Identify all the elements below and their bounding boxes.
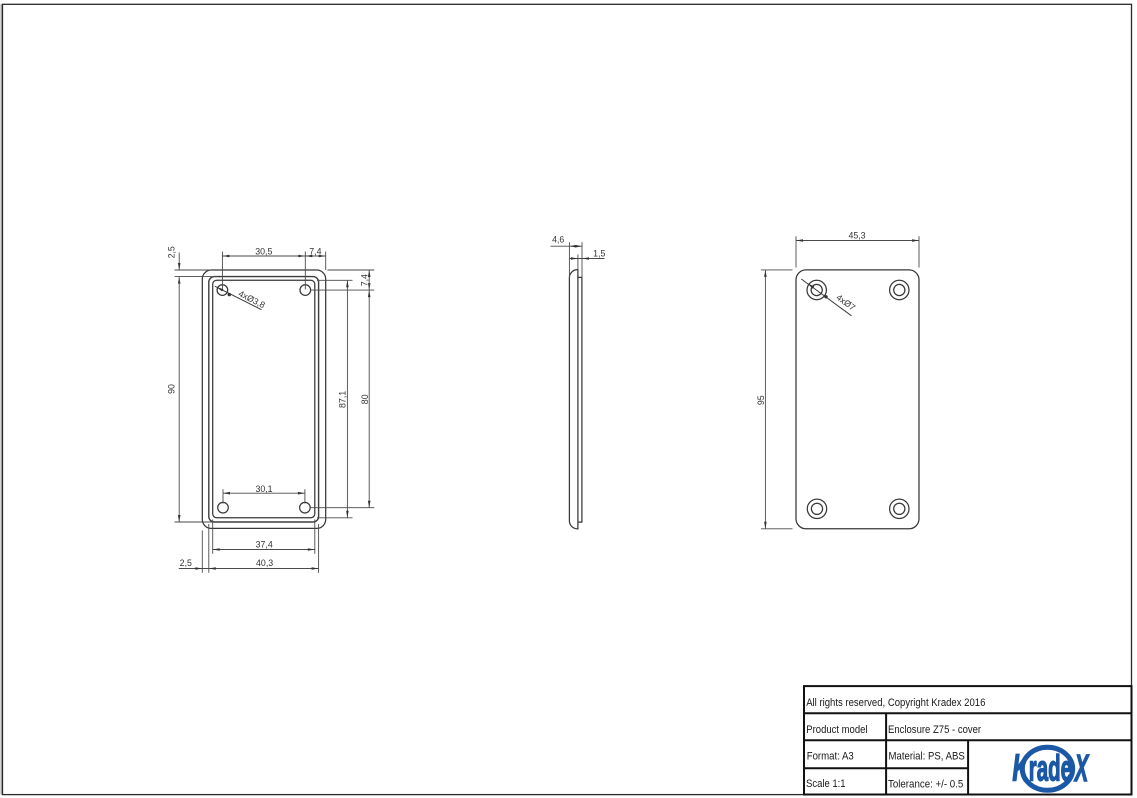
svg-text:45,3: 45,3 [848, 231, 865, 241]
svg-text:All rights reserved, Copyright: All rights reserved, Copyright Kradex 20… [806, 697, 985, 709]
svg-text:95: 95 [756, 395, 766, 405]
svg-text:40,3: 40,3 [256, 558, 273, 568]
svg-text:2,5: 2,5 [180, 558, 192, 568]
svg-text:30,5: 30,5 [255, 246, 272, 256]
svg-text:rade: rade [1029, 748, 1072, 789]
svg-text:80: 80 [360, 394, 370, 404]
svg-text:2,5: 2,5 [167, 246, 177, 258]
svg-text:Scale 1:1: Scale 1:1 [806, 778, 846, 790]
svg-text:Product model: Product model [806, 724, 867, 736]
svg-text:Format: A3: Format: A3 [807, 751, 854, 763]
svg-text:4,6: 4,6 [552, 235, 564, 245]
svg-text:37,4: 37,4 [256, 539, 273, 549]
svg-text:7,4: 7,4 [309, 246, 321, 256]
svg-text:1,5: 1,5 [593, 248, 605, 258]
svg-text:87,1: 87,1 [338, 391, 348, 408]
svg-text:Enclosure Z75 - cover: Enclosure Z75 - cover [888, 724, 981, 736]
svg-text:7,4: 7,4 [360, 274, 370, 286]
svg-text:90: 90 [167, 384, 177, 394]
svg-text:Material: PS, ABS: Material: PS, ABS [889, 750, 965, 762]
svg-text:X: X [1074, 748, 1090, 790]
svg-text:30,1: 30,1 [255, 484, 272, 494]
svg-text:Tolerance: +/- 0.5: Tolerance: +/- 0.5 [888, 778, 963, 790]
